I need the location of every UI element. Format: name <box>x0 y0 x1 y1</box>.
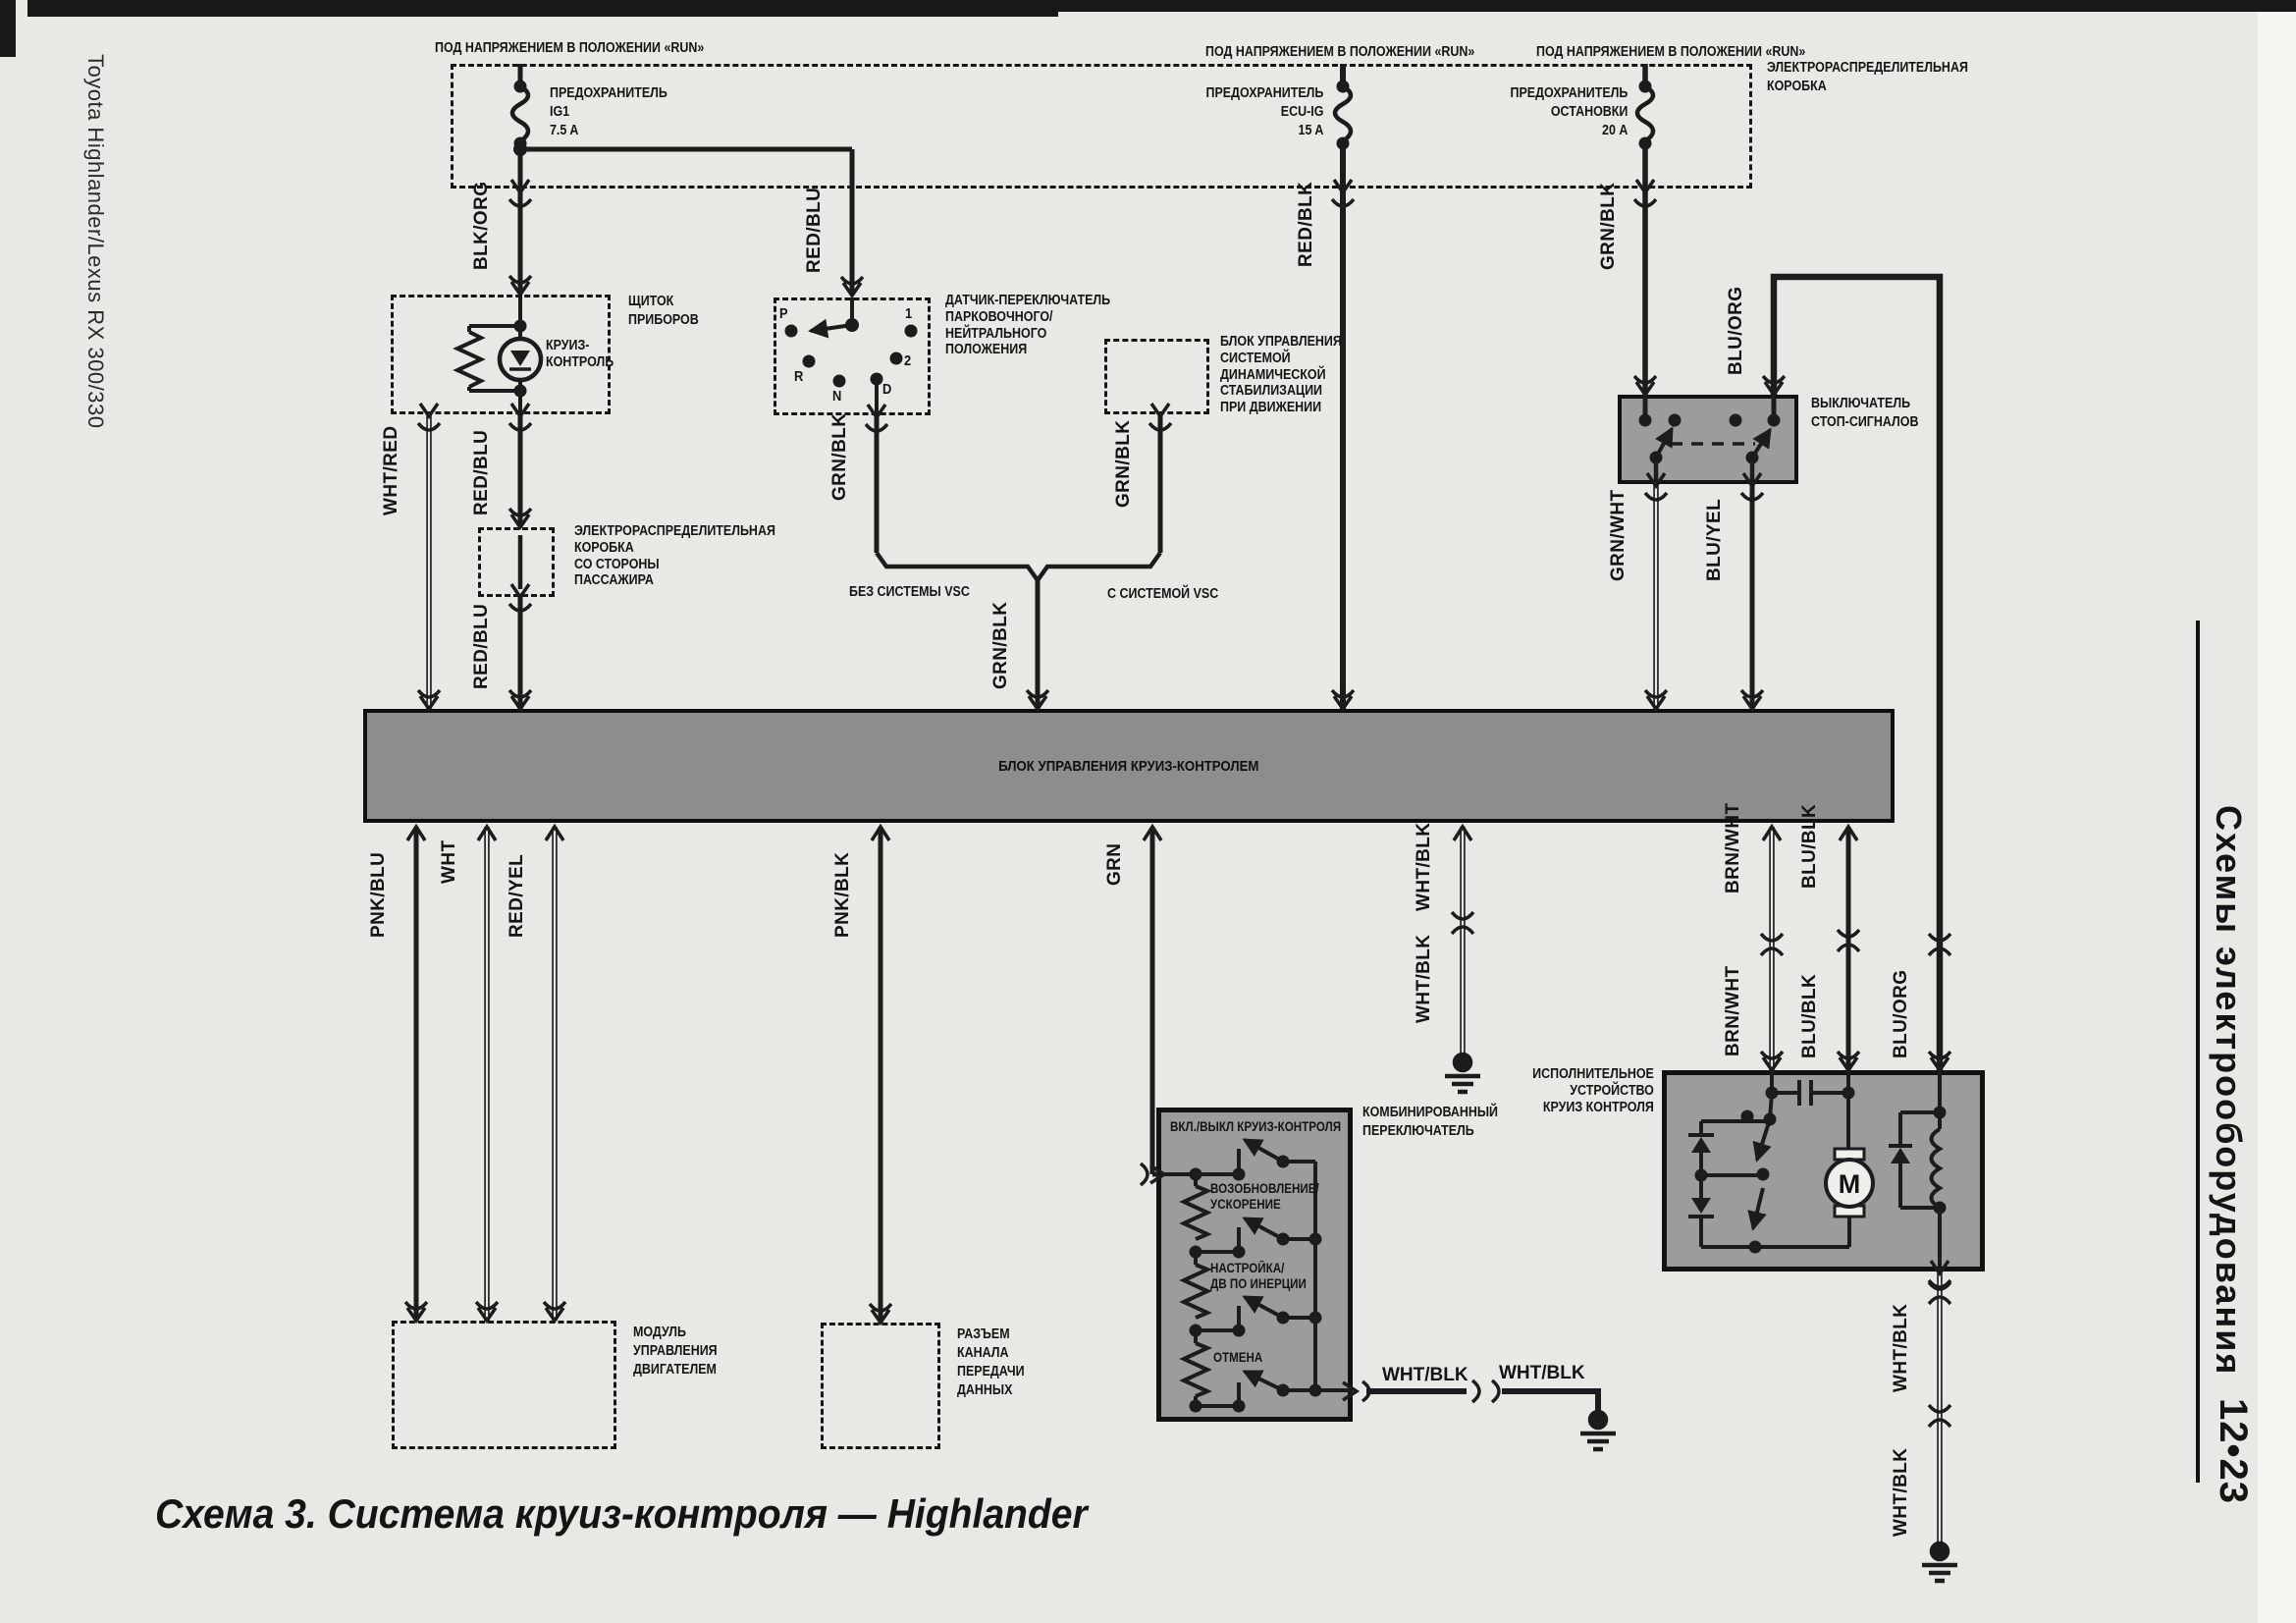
wire-label-wht-blk-d: WHT/BLK <box>1892 1448 1911 1537</box>
cruise-lamp-label: КРУИЗ- КОНТРОЛЬ <box>546 338 614 371</box>
wire-label-grn-blk-b: GRN/BLK <box>830 413 850 501</box>
wire-label-blu-blk-b: BLU/BLK <box>1800 974 1820 1058</box>
combo-resume-label: ВОЗОБНОВЛЕНИЕ/ УСКОРЕНИЕ <box>1210 1181 1319 1212</box>
ground-icon <box>1445 1055 1480 1092</box>
wire-wht-blk-horizontal <box>1366 1391 1598 1412</box>
wire-label-brn-wht-b: BRN/WHT <box>1724 965 1743 1056</box>
actuator-label: ИСПОЛНИТЕЛЬНОЕ УСТРОЙСТВО КРУИЗ КОНТРОЛЯ <box>1532 1066 1654 1115</box>
wire-label-blu-org-b: BLU/ORG <box>1892 970 1911 1058</box>
run-label-3: ПОД НАПРЯЖЕНИЕМ В ПОЛОЖЕНИИ «RUN» <box>1536 43 1805 62</box>
right-margin-title: Схемы электрооборудования <box>2208 805 2249 1376</box>
vsc-module-box <box>1104 339 1209 414</box>
wire-label-wht-blk-c: WHT/BLK <box>1892 1304 1911 1392</box>
pnp-pos-r: R <box>794 367 803 387</box>
engine-module-label: МОДУЛЬ УПРАВЛЕНИЯ ДВИГАТЕЛЕМ <box>633 1324 718 1380</box>
fuse-stop-label: ПРЕДОХРАНИТЕЛЬ ОСТАНОВКИ 20 A <box>1510 84 1628 140</box>
cruise-control-ecu-bar: БЛОК УПРАВЛЕНИЯ КРУИЗ-КОНТРОЛЕМ <box>363 709 1895 823</box>
stop-switch-label: ВЫКЛЮЧАТЕЛЬ СТОП-СИГНАЛОВ <box>1811 395 1918 432</box>
engine-module-box <box>392 1321 616 1449</box>
wire-label-wht-red: WHT/RED <box>382 426 401 515</box>
left-margin-text: Toyota Highlander/Lexus RX 300/330 <box>82 54 108 428</box>
wire-label-red-blu-c: RED/BLU <box>472 604 492 689</box>
pnp-pos-p: P <box>779 304 788 324</box>
sidebar-rule <box>2196 621 2200 1483</box>
fuse-ecu-ig-label: ПРЕДОХРАНИТЕЛЬ ECU-IG 15 A <box>1205 84 1323 140</box>
dlc-box <box>821 1323 940 1449</box>
dlc-label: РАЗЪЕМ КАНАЛА ПЕРЕДАЧИ ДАННЫХ <box>957 1325 1025 1401</box>
wire-label-grn-wht: GRN/WHT <box>1609 489 1629 581</box>
page-number: 12•23 <box>2211 1398 2255 1504</box>
wire-label-blk-org: BLK/ORG <box>472 182 492 270</box>
wire-label-blu-blk-a: BLU/BLK <box>1800 804 1820 889</box>
combo-on-off-label: ВКЛ./ВЫКЛ КРУИЗ-КОНТРОЛЯ <box>1170 1118 1341 1136</box>
scan-artifact-top-thick <box>27 0 1058 17</box>
wire-label-blu-yel: BLU/YEL <box>1705 499 1725 581</box>
ground-icon <box>1580 1412 1616 1449</box>
run-label-1: ПОД НАПРЯЖЕНИЕМ В ПОЛОЖЕНИИ «RUN» <box>435 39 704 58</box>
combo-switch-label: КОМБИНИРОВАННЫЙ ПЕРЕКЛЮЧАТЕЛЬ <box>1362 1104 1498 1141</box>
actuator-box <box>1662 1070 1985 1271</box>
with-vsc-label: С СИСТЕМОЙ VSC <box>1107 585 1218 604</box>
wire-label-grn-blk-a: GRN/BLK <box>1599 183 1619 270</box>
cruise-ecu-label: БЛОК УПРАВЛЕНИЯ КРУИЗ-КОНТРОЛЕМ <box>998 758 1258 775</box>
wire-label-red-blu-a: RED/BLU <box>805 188 825 273</box>
combo-set-label: НАСТРОЙКА/ ДВ ПО ИНЕРЦИИ <box>1210 1261 1307 1291</box>
pnp-switch-label: ДАТЧИК-ПЕРЕКЛЮЧАТЕЛЬ ПАРКОВОЧНОГО/ НЕЙТР… <box>945 293 1110 358</box>
wiring-diagram-page: Toyota Highlander/Lexus RX 300/330 Схемы… <box>0 0 2296 1623</box>
wire-label-blu-org-a: BLU/ORG <box>1727 287 1746 375</box>
passenger-jb-label: ЭЛЕКТРОРАСПРЕДЕЛИТЕЛЬНАЯ КОРОБКА СО СТОР… <box>574 523 775 589</box>
wire-label-wht-blk-a: WHT/BLK <box>1415 823 1434 911</box>
cluster-label: ЩИТОК ПРИБОРОВ <box>628 293 699 330</box>
fuse-ig1-label: ПРЕДОХРАНИТЕЛЬ IG1 7.5 A <box>550 84 667 140</box>
vsc-module-label: БЛОК УПРАВЛЕНИЯ СИСТЕМОЙ ДИНАМИЧЕСКОЙ СТ… <box>1220 334 1342 416</box>
wire-label-pnk-blk: PNK/BLK <box>833 852 853 938</box>
wire-label-wht-blk-h2: WHT/BLK <box>1499 1363 1585 1384</box>
wire-label-brn-wht-a: BRN/WHT <box>1724 802 1743 893</box>
pnp-pos-2: 2 <box>904 352 911 371</box>
wire-label-wht: WHT <box>440 840 459 884</box>
diagram-caption: Схема 3. Система круиз-контроля — Highla… <box>155 1490 1088 1538</box>
wire-label-grn-blk-c: GRN/BLK <box>1114 420 1134 508</box>
wire-label-wht-blk-b: WHT/BLK <box>1415 935 1434 1023</box>
wire-label-wht-blk-h1: WHT/BLK <box>1382 1365 1468 1386</box>
wire-label-grn-blk-d: GRN/BLK <box>991 602 1011 689</box>
run-label-2: ПОД НАПРЯЖЕНИЕМ В ПОЛОЖЕНИИ «RUN» <box>1205 43 1474 62</box>
passenger-junction-box <box>478 527 555 597</box>
ground-icon <box>1922 1543 1957 1581</box>
wire-label-red-blk: RED/BLK <box>1297 182 1316 267</box>
wire-label-red-blu-b: RED/BLU <box>472 430 492 515</box>
wire-label-grn: GRN <box>1105 843 1125 886</box>
junction-box-label: ЭЛЕКТРОРАСПРЕДЕЛИТЕЛЬНАЯ КОРОБКА <box>1767 59 1968 96</box>
page-edge-strip <box>2258 0 2296 1623</box>
pnp-pos-1: 1 <box>905 304 912 324</box>
without-vsc-label: БЕЗ СИСТЕМЫ VSC <box>849 583 970 602</box>
scan-artifact-corner <box>0 0 16 57</box>
vsc-variant-bracket <box>877 553 1160 580</box>
wire-label-pnk-blu: PNK/BLU <box>369 852 389 938</box>
pnp-pos-n: N <box>832 387 841 406</box>
wire-label-red-yel: RED/YEL <box>507 854 527 938</box>
stop-light-switch-box <box>1618 395 1798 484</box>
pnp-pos-d: D <box>882 380 891 400</box>
combo-cancel-label: ОТМЕНА <box>1213 1349 1262 1367</box>
